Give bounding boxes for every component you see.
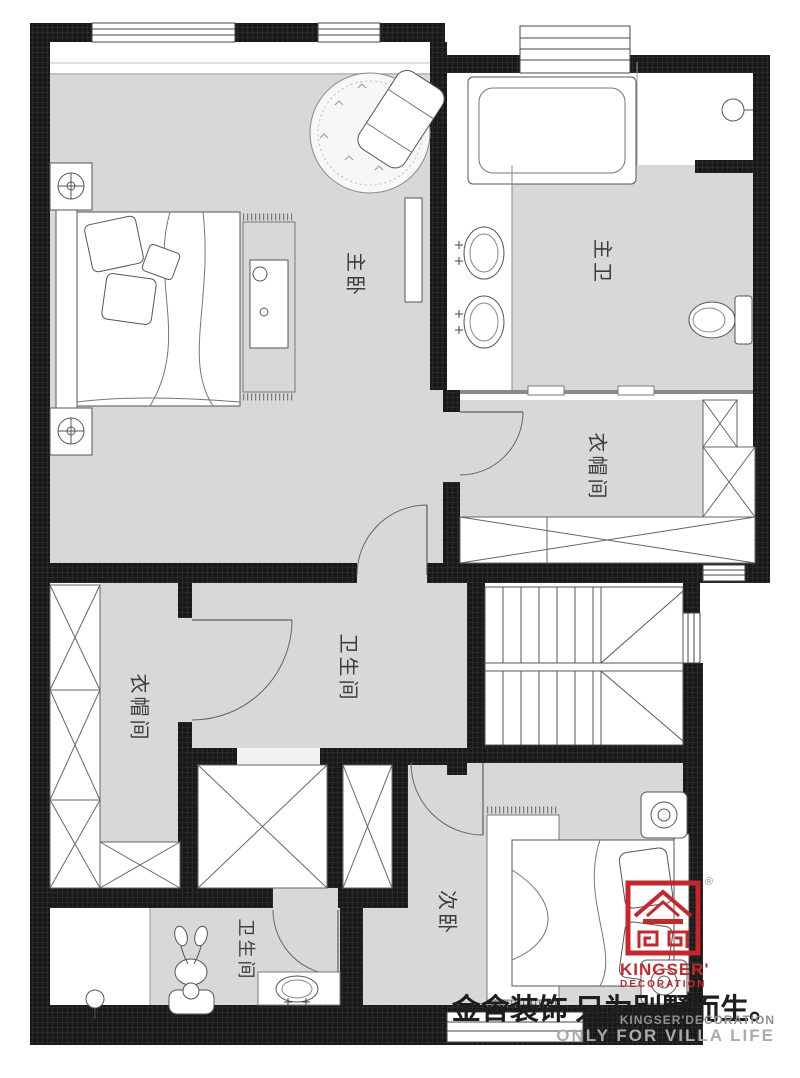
room-label-bathroom-center: 卫生间 bbox=[336, 634, 365, 703]
master-bath-floor bbox=[512, 165, 753, 390]
door-opening bbox=[357, 563, 427, 583]
nightstand bbox=[50, 163, 92, 210]
door-opening bbox=[273, 888, 338, 908]
wardrobe-cabinet bbox=[100, 842, 180, 888]
window-seat bbox=[50, 42, 430, 75]
nightstand bbox=[641, 792, 687, 838]
shower-head-icon bbox=[722, 99, 753, 121]
shower-opening bbox=[237, 748, 320, 765]
logo-wordmark: KINGSER' bbox=[620, 961, 706, 979]
sink bbox=[455, 296, 504, 348]
wardrobe-cabinet bbox=[50, 585, 100, 690]
nightstand bbox=[50, 408, 92, 455]
bay-window bbox=[520, 26, 630, 73]
bathtub bbox=[468, 77, 636, 184]
wardrobe-cabinet bbox=[460, 517, 755, 563]
staircase bbox=[485, 587, 683, 745]
wardrobe-cabinet bbox=[703, 447, 755, 517]
room-label-cloakroom-left: 衣帽间 bbox=[127, 674, 156, 743]
footer-english-line2: ONLY FOR VILLA LIFE bbox=[556, 1026, 775, 1046]
wardrobe-cabinet bbox=[50, 690, 100, 800]
room-label-bathroom-bottom: 卫生间 bbox=[234, 919, 260, 982]
room-label-master-bedroom: 主卧 bbox=[343, 252, 372, 298]
wardrobe-cabinet bbox=[50, 800, 100, 888]
room-label-master-bath: 主卫 bbox=[590, 239, 619, 285]
cloakroom-right-floor bbox=[460, 400, 703, 517]
storage-cabinet bbox=[343, 765, 392, 888]
window bbox=[683, 613, 700, 663]
room-label-second-bedroom: 次卧 bbox=[435, 890, 464, 936]
bathroom-center-floor bbox=[192, 583, 467, 748]
window bbox=[92, 23, 235, 42]
kingser-logo-mark: ® bbox=[625, 880, 701, 961]
footer-english-line1: KINGSER'DECORATION bbox=[620, 1013, 775, 1027]
shower-cabin bbox=[198, 765, 327, 888]
kingser-logo-icon bbox=[625, 880, 701, 956]
registered-mark: ® bbox=[705, 876, 713, 888]
master-bed bbox=[56, 208, 240, 410]
sink bbox=[455, 227, 504, 279]
room-label-cloakroom-right: 衣帽间 bbox=[585, 433, 614, 502]
sink bbox=[258, 972, 340, 1006]
door-opening bbox=[443, 412, 460, 482]
floor-plan-page: 主卧 主卫 衣帽间 衣帽间 卫生间 卫生间 次卧 ® KINGSER' DECO… bbox=[0, 0, 800, 1078]
wardrobe-cabinet bbox=[703, 400, 737, 447]
kingser-logo: ® KINGSER' DECORATION bbox=[620, 880, 706, 991]
window bbox=[318, 23, 380, 42]
tv-console bbox=[405, 198, 422, 302]
door-opening bbox=[178, 618, 192, 722]
window bbox=[703, 565, 745, 581]
